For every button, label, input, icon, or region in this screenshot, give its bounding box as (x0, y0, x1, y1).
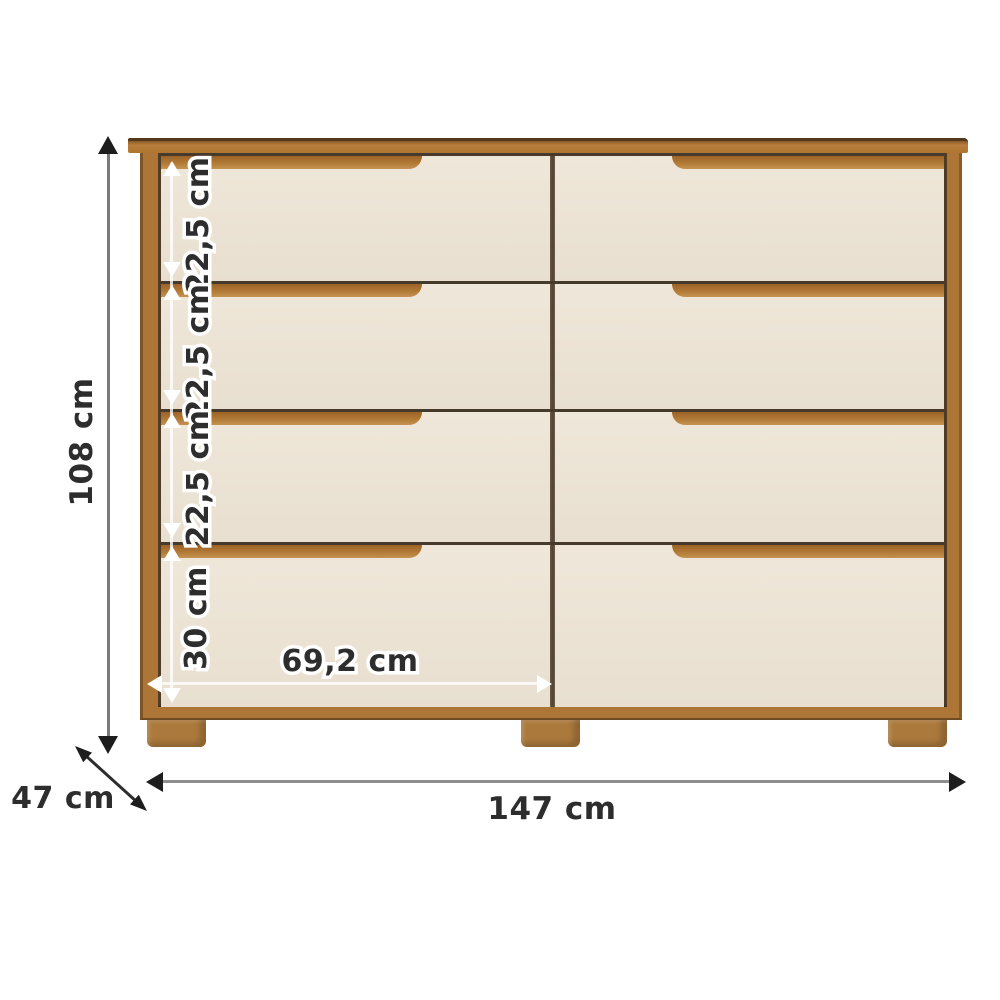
leg-right (888, 720, 947, 747)
width-dimension-line (158, 780, 952, 783)
row3-height-label: 22,5 cm22,5 cm (180, 398, 216, 558)
drawer-handle-recess (672, 284, 944, 297)
row2-arrow-up-icon (163, 285, 181, 300)
height-arrow-up-icon (98, 136, 118, 154)
drawer-width-line (156, 682, 537, 685)
drawer-row-1 (161, 153, 944, 281)
drawer-width-label: 69,2 cm69,2 cm (270, 643, 430, 679)
drawer (555, 412, 944, 542)
depth-dimension-label: 47 cm (13, 780, 113, 816)
drawer (555, 156, 944, 281)
diagram-canvas: 108 cm 22,5 cm22,5 cm 22,5 cm22,5 cm 22,… (0, 0, 1000, 1000)
drawer (161, 156, 550, 281)
drawer-width-arrow-left-icon (147, 675, 162, 693)
row4-height-label: 30 cm30 cm (178, 548, 214, 688)
drawer-width-arrow-right-icon (537, 675, 552, 693)
drawer-handle-recess (672, 545, 944, 558)
drawer (161, 284, 550, 409)
row4-arrow-down-icon (163, 688, 181, 703)
drawer-handle-recess (672, 412, 944, 425)
height-dimension-line (107, 154, 110, 736)
drawer-row-3 (161, 409, 944, 542)
row1-arrow-up-icon (163, 161, 181, 176)
dresser-bottom-rail (143, 705, 959, 718)
leg-center (521, 720, 580, 747)
row2-arrow-down-icon (163, 390, 181, 405)
dresser-top-panel (128, 138, 968, 153)
row1-arrow-down-icon (163, 262, 181, 277)
drawer-area (158, 153, 947, 707)
width-arrow-right-icon (949, 772, 966, 792)
width-arrow-left-icon (146, 772, 163, 792)
drawer (555, 545, 944, 707)
drawer-handle-recess (672, 156, 944, 169)
width-dimension-label: 147 cm (472, 791, 632, 827)
dresser-body (140, 153, 962, 720)
drawer (555, 284, 944, 409)
row3-arrow-down-icon (163, 523, 181, 538)
drawer-row-2 (161, 281, 944, 409)
drawer (161, 412, 550, 542)
row3-arrow-up-icon (163, 413, 181, 428)
row-dimension-line (170, 163, 173, 700)
height-dimension-label: 108 cm (64, 357, 100, 527)
